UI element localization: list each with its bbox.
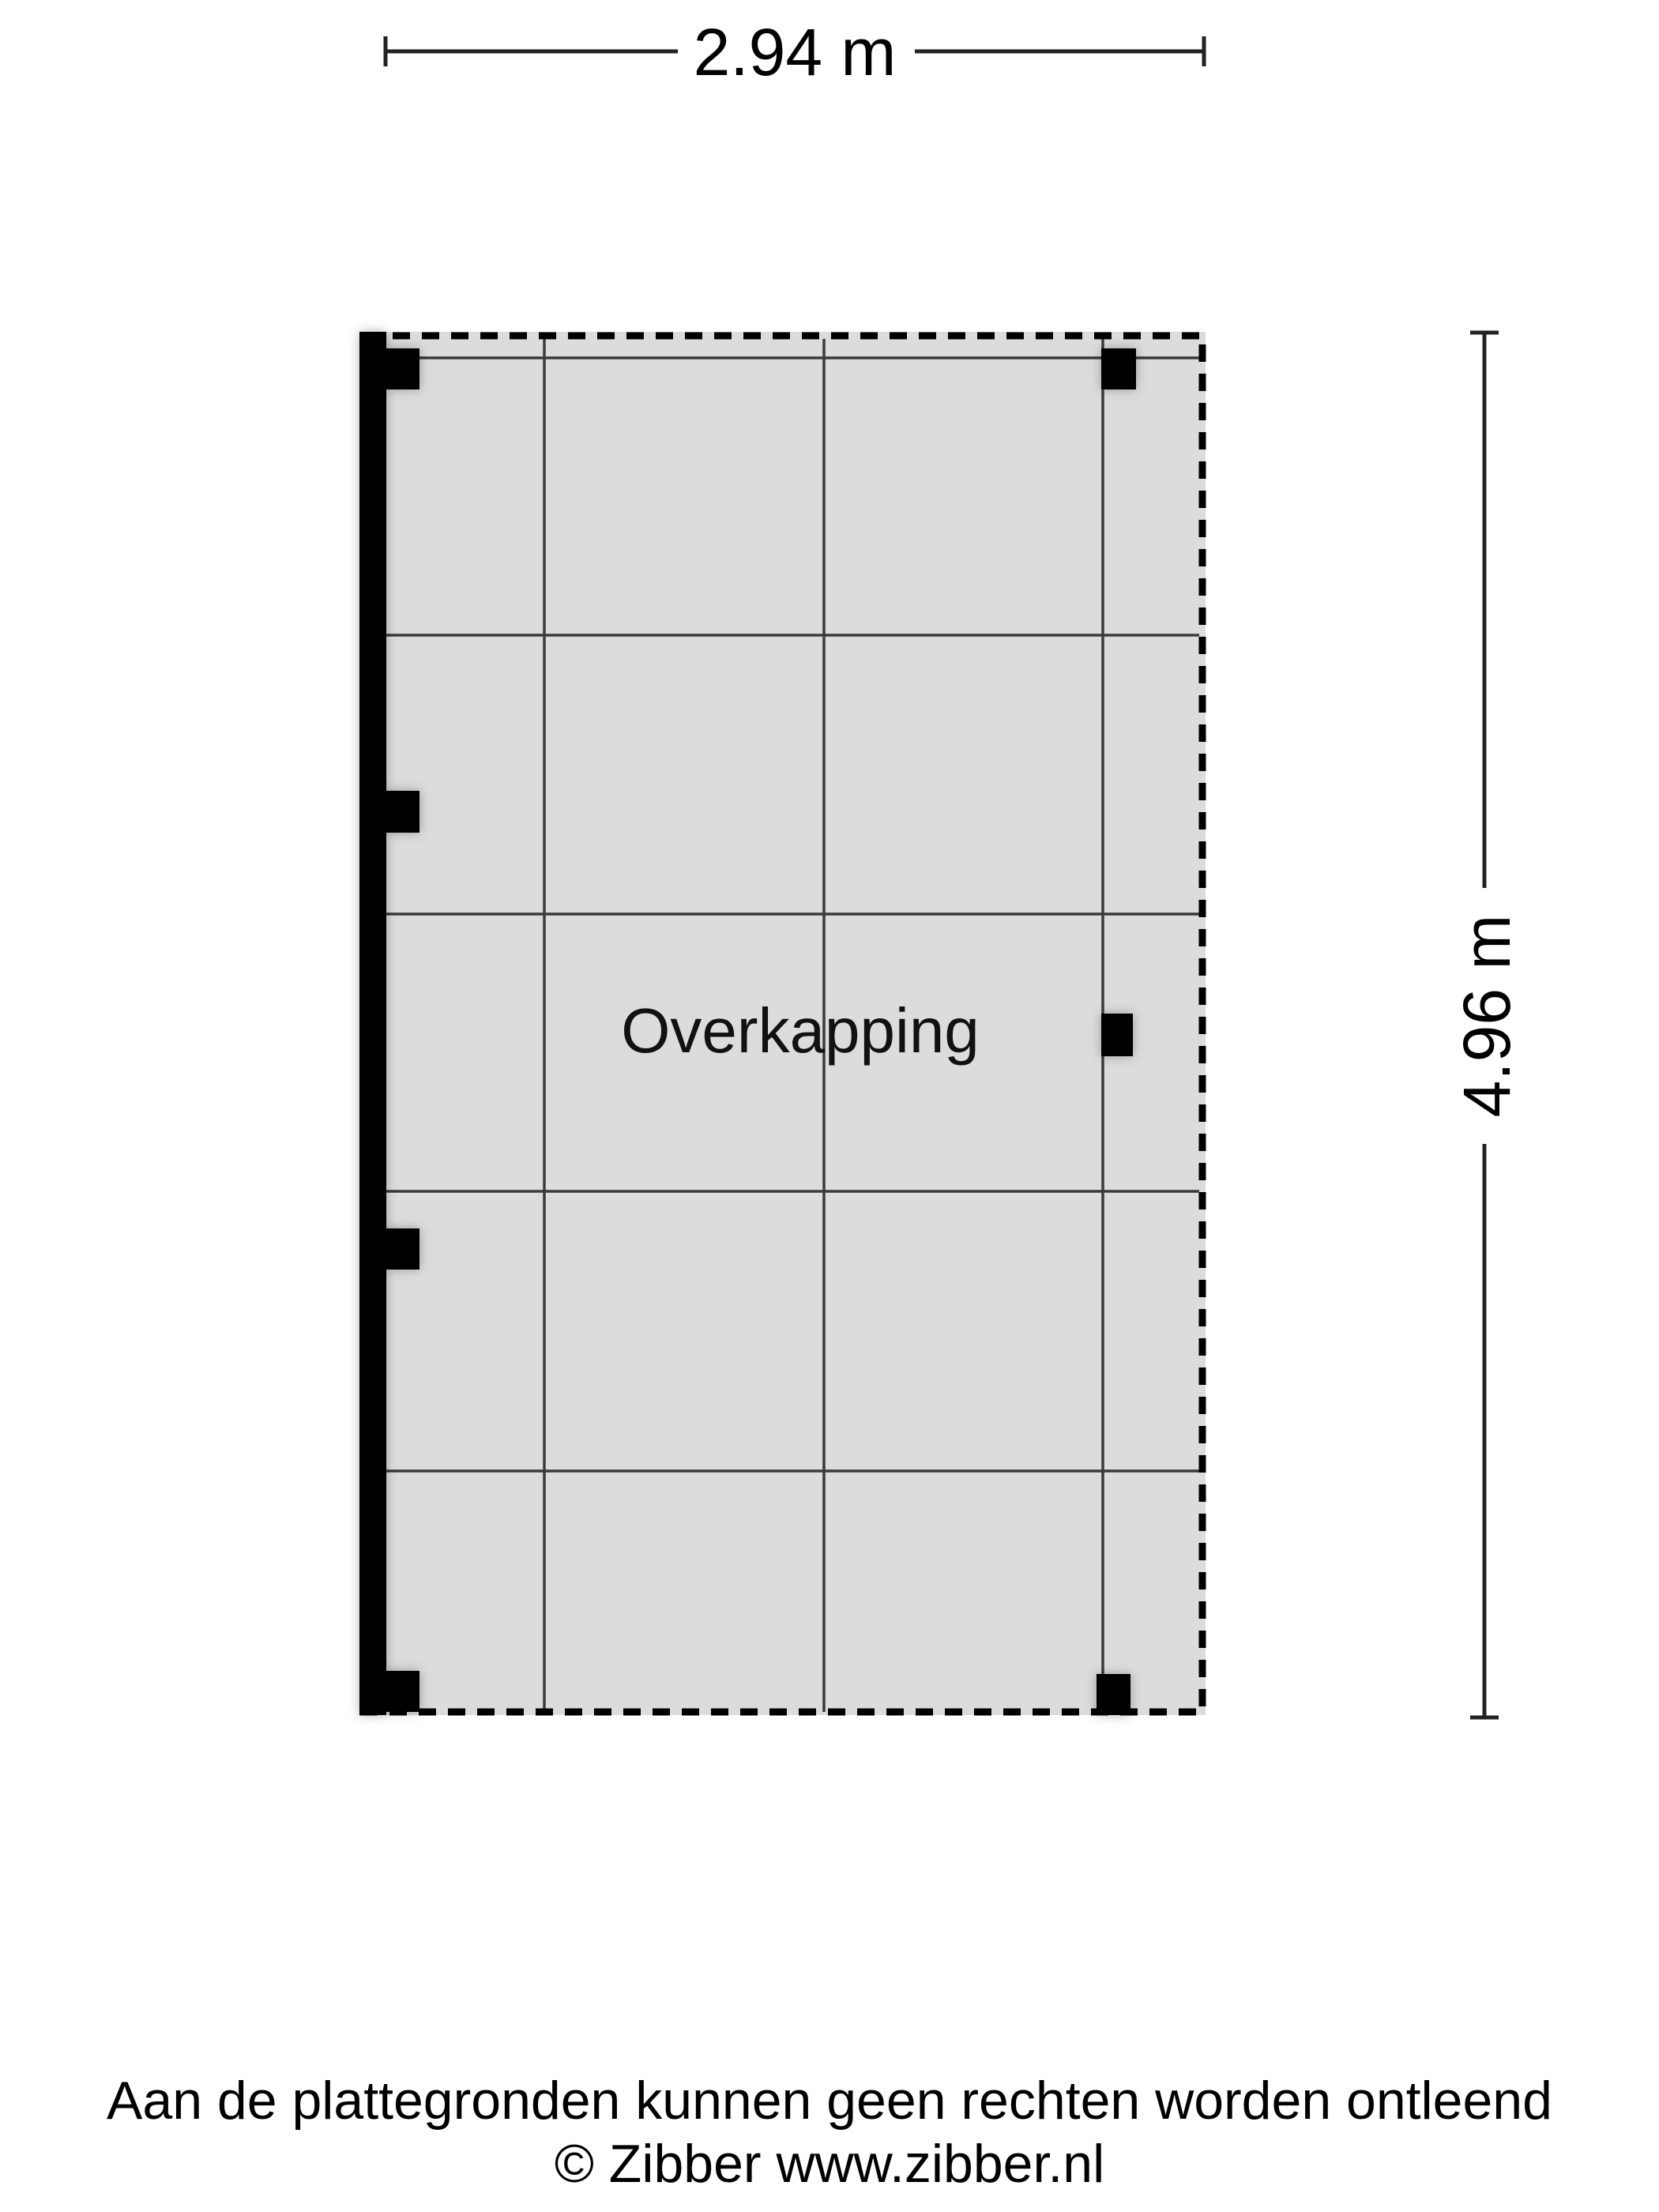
disclaimer-text: Aan de plattegronden kunnen geen rechten… <box>107 2071 1552 2131</box>
floorplan-canvas: 2.94 m Overkapping 4.96 m Aan de plat <box>0 0 1659 2212</box>
post-mid-right <box>1101 1014 1133 1056</box>
room-label: Overkapping <box>621 995 980 1066</box>
width-dimension-label: 2.94 m <box>694 15 897 89</box>
copyright-text: © Zibber www.zibber.nl <box>555 2134 1104 2194</box>
height-dimension-label: 4.96 m <box>1450 915 1524 1118</box>
post-bottom-left <box>386 1671 419 1712</box>
post-mid-upper-left <box>386 791 419 833</box>
post-bottom-right <box>1097 1674 1130 1715</box>
post-top-left <box>386 348 419 389</box>
left-wall <box>359 332 386 1715</box>
post-mid-lower-left <box>386 1228 419 1270</box>
post-top-right <box>1101 348 1136 389</box>
